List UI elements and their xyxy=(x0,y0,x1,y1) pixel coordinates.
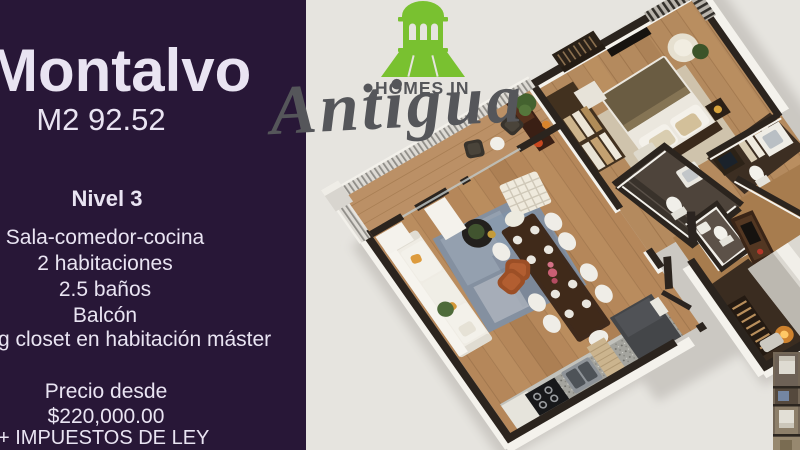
svg-text:Antigua: Antigua xyxy=(264,60,526,150)
svg-text:HOMES IN: HOMES IN xyxy=(375,78,470,98)
